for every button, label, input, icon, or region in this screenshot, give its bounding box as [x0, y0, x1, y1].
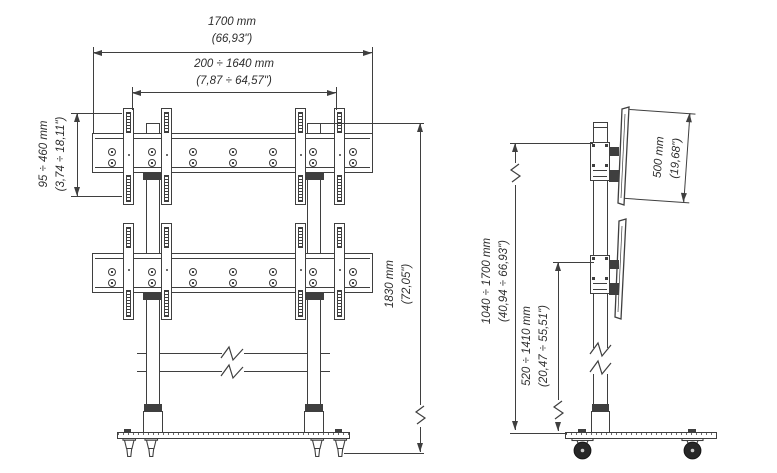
caster-wheel-icon [331, 436, 349, 458]
bracket-bolt [605, 164, 608, 167]
strip-slot [164, 112, 168, 133]
bracket-line [593, 283, 607, 284]
post-base-tube [143, 411, 163, 433]
dim-label-screen-height: 500 mm (19,68") [650, 136, 687, 180]
vesa-hole [269, 159, 277, 167]
rail-clamp [143, 173, 163, 180]
arrowhead-up-icon [686, 113, 693, 122]
tilt-bracket-upper [590, 142, 610, 181]
strip-pivot-dot [128, 154, 130, 156]
vesa-hole [229, 159, 237, 167]
bracket-line [593, 170, 607, 171]
strip-slot [164, 175, 168, 202]
arrowhead-up-icon [555, 262, 561, 271]
strip-slot [126, 227, 130, 248]
break-zigzag-icon [588, 359, 613, 375]
dim-label-lower-screen-height: 520 ÷ 1410 mm (20,47 ÷ 55,51") [519, 305, 554, 387]
arrowhead-up-icon [74, 113, 80, 122]
extension-line [336, 87, 337, 110]
vesa-hole [309, 268, 317, 276]
rail-clamp [304, 173, 324, 180]
dim-line [515, 185, 516, 430]
dim-line [77, 113, 78, 196]
strip-pivot-dot [339, 154, 341, 156]
post-collar [144, 404, 162, 411]
arrowhead-down-icon [680, 193, 687, 202]
dim-line [93, 52, 372, 53]
vesa-hole [269, 268, 277, 276]
break-zigzag-icon [588, 341, 613, 357]
vesa-hole [148, 159, 156, 167]
extension-line [321, 123, 424, 124]
dim-label-bracket-span: 200 ÷ 1640 mm (7,87 ÷ 64,57") [194, 56, 274, 91]
post-collar [592, 404, 609, 411]
strip-slot [164, 290, 168, 317]
vesa-hole [309, 279, 317, 287]
vesa-hole [309, 148, 317, 156]
break-zigzag-icon [219, 345, 245, 361]
vesa-hole [229, 148, 237, 156]
dim-line [132, 92, 336, 93]
extension-line [93, 47, 94, 133]
vesa-hole [108, 148, 116, 156]
vesa-hole [349, 268, 357, 276]
vesa-hole [309, 159, 317, 167]
extension-line [510, 143, 593, 144]
caster-wheel-side-icon [568, 437, 598, 460]
strip-slot [337, 290, 341, 317]
strip-pivot-dot [128, 269, 130, 271]
dim-label-bracket-vertical: 95 ÷ 460 mm (3,74 ÷ 18,11") [36, 117, 71, 192]
vesa-hole [189, 279, 197, 287]
bracket-bolt [605, 257, 608, 260]
strip-slot [298, 290, 302, 317]
extension-line [372, 47, 373, 133]
rail-flange-line [95, 287, 370, 288]
strip-slot [337, 175, 341, 202]
strip-slot [298, 175, 302, 202]
vesa-hole [148, 279, 156, 287]
rail-clamp [304, 293, 324, 300]
strip-pivot-dot [166, 269, 168, 271]
arrowhead-down-icon [512, 421, 518, 430]
mount-hook [609, 170, 619, 182]
vesa-bracket-strip [295, 108, 306, 205]
vesa-hole [349, 148, 357, 156]
arrowhead-up-icon [417, 123, 423, 132]
post-cap-line [593, 127, 608, 128]
vesa-hole [349, 159, 357, 167]
strip-slot [164, 227, 168, 248]
break-zigzag-icon [413, 405, 427, 425]
bracket-bolt [605, 277, 608, 280]
vesa-hole [108, 279, 116, 287]
screen-panel-upper [608, 106, 634, 208]
strip-pivot-dot [166, 154, 168, 156]
bracket-bolt [592, 257, 595, 260]
technical-drawing-canvas: 1700 mm (66,93") 200 ÷ 1640 mm (7,87 ÷ 6… [0, 0, 777, 473]
vesa-bracket-strip [161, 223, 172, 320]
mount-hook [609, 260, 619, 269]
break-zigzag-icon [219, 363, 245, 379]
bracket-bolt [592, 164, 595, 167]
strip-slot [298, 227, 302, 248]
arrowhead-up-icon [512, 143, 518, 152]
strip-pivot-dot [300, 154, 302, 156]
extension-line [510, 433, 567, 434]
vesa-hole [269, 148, 277, 156]
extension-line [132, 87, 133, 110]
bracket-bolt [592, 144, 595, 147]
caster-wheel-side-icon [678, 437, 708, 460]
bracket-bolt [592, 277, 595, 280]
strip-slot [298, 112, 302, 133]
extension-line [344, 453, 424, 454]
strip-slot [126, 112, 130, 133]
vesa-bracket-strip [123, 108, 134, 205]
dim-label-total-width: 1700 mm (66,93") [208, 14, 256, 49]
rail-flange-line [95, 258, 370, 259]
bracket-line [593, 176, 607, 177]
post-base-tube [591, 411, 610, 433]
vesa-hole [189, 148, 197, 156]
bracket-bolt [605, 144, 608, 147]
caster-wheel-icon [120, 436, 138, 458]
vesa-hole [108, 268, 116, 276]
mount-hook [609, 283, 619, 295]
vesa-hole [189, 268, 197, 276]
rail-flange-line [95, 167, 370, 168]
vesa-bracket-strip [295, 223, 306, 320]
break-zigzag-icon [508, 163, 522, 183]
vesa-hole [189, 159, 197, 167]
rail-clamp [143, 293, 163, 300]
post-collar [305, 404, 323, 411]
vesa-hole [229, 268, 237, 276]
strip-slot [126, 290, 130, 317]
arrowhead-down-icon [417, 443, 423, 452]
strip-pivot-dot [300, 269, 302, 271]
extension-line [71, 196, 122, 197]
strip-pivot-dot [339, 269, 341, 271]
mount-hook [609, 147, 619, 156]
vesa-hole [349, 279, 357, 287]
base-plate-hatch [118, 433, 349, 435]
dimension-screen-height: 500 mm (19,68") [623, 104, 702, 213]
strip-slot [126, 175, 130, 202]
vesa-hole [148, 268, 156, 276]
base-plate-hatch [566, 433, 716, 435]
arrowhead-down-icon [555, 422, 561, 431]
bracket-line [593, 289, 607, 290]
break-zigzag-icon [551, 400, 565, 420]
extension-line [71, 113, 122, 114]
arrowhead-left-icon [93, 50, 102, 56]
dim-label-upper-screen-height: 1040 ÷ 1700 mm (40,94 ÷ 66,93") [479, 238, 514, 324]
vesa-bracket-strip [161, 108, 172, 205]
dim-line [420, 123, 421, 409]
arrowhead-left-icon [132, 90, 141, 96]
extension-line [553, 262, 594, 263]
strip-slot [337, 227, 341, 248]
post-base-tube [304, 411, 324, 433]
vesa-hole [108, 159, 116, 167]
vesa-hole [229, 279, 237, 287]
vesa-hole [148, 148, 156, 156]
vesa-hole [269, 279, 277, 287]
base-plate-side [565, 432, 717, 439]
rail-flange-line [95, 138, 370, 139]
dim-label-total-height: 1830 mm (72,05") [382, 260, 417, 308]
dim-line [558, 262, 559, 402]
vesa-bracket-strip [334, 223, 345, 320]
caster-wheel-icon [308, 436, 326, 458]
vesa-bracket-strip [123, 223, 134, 320]
base-plate [117, 432, 350, 439]
caster-wheel-icon [142, 436, 160, 458]
